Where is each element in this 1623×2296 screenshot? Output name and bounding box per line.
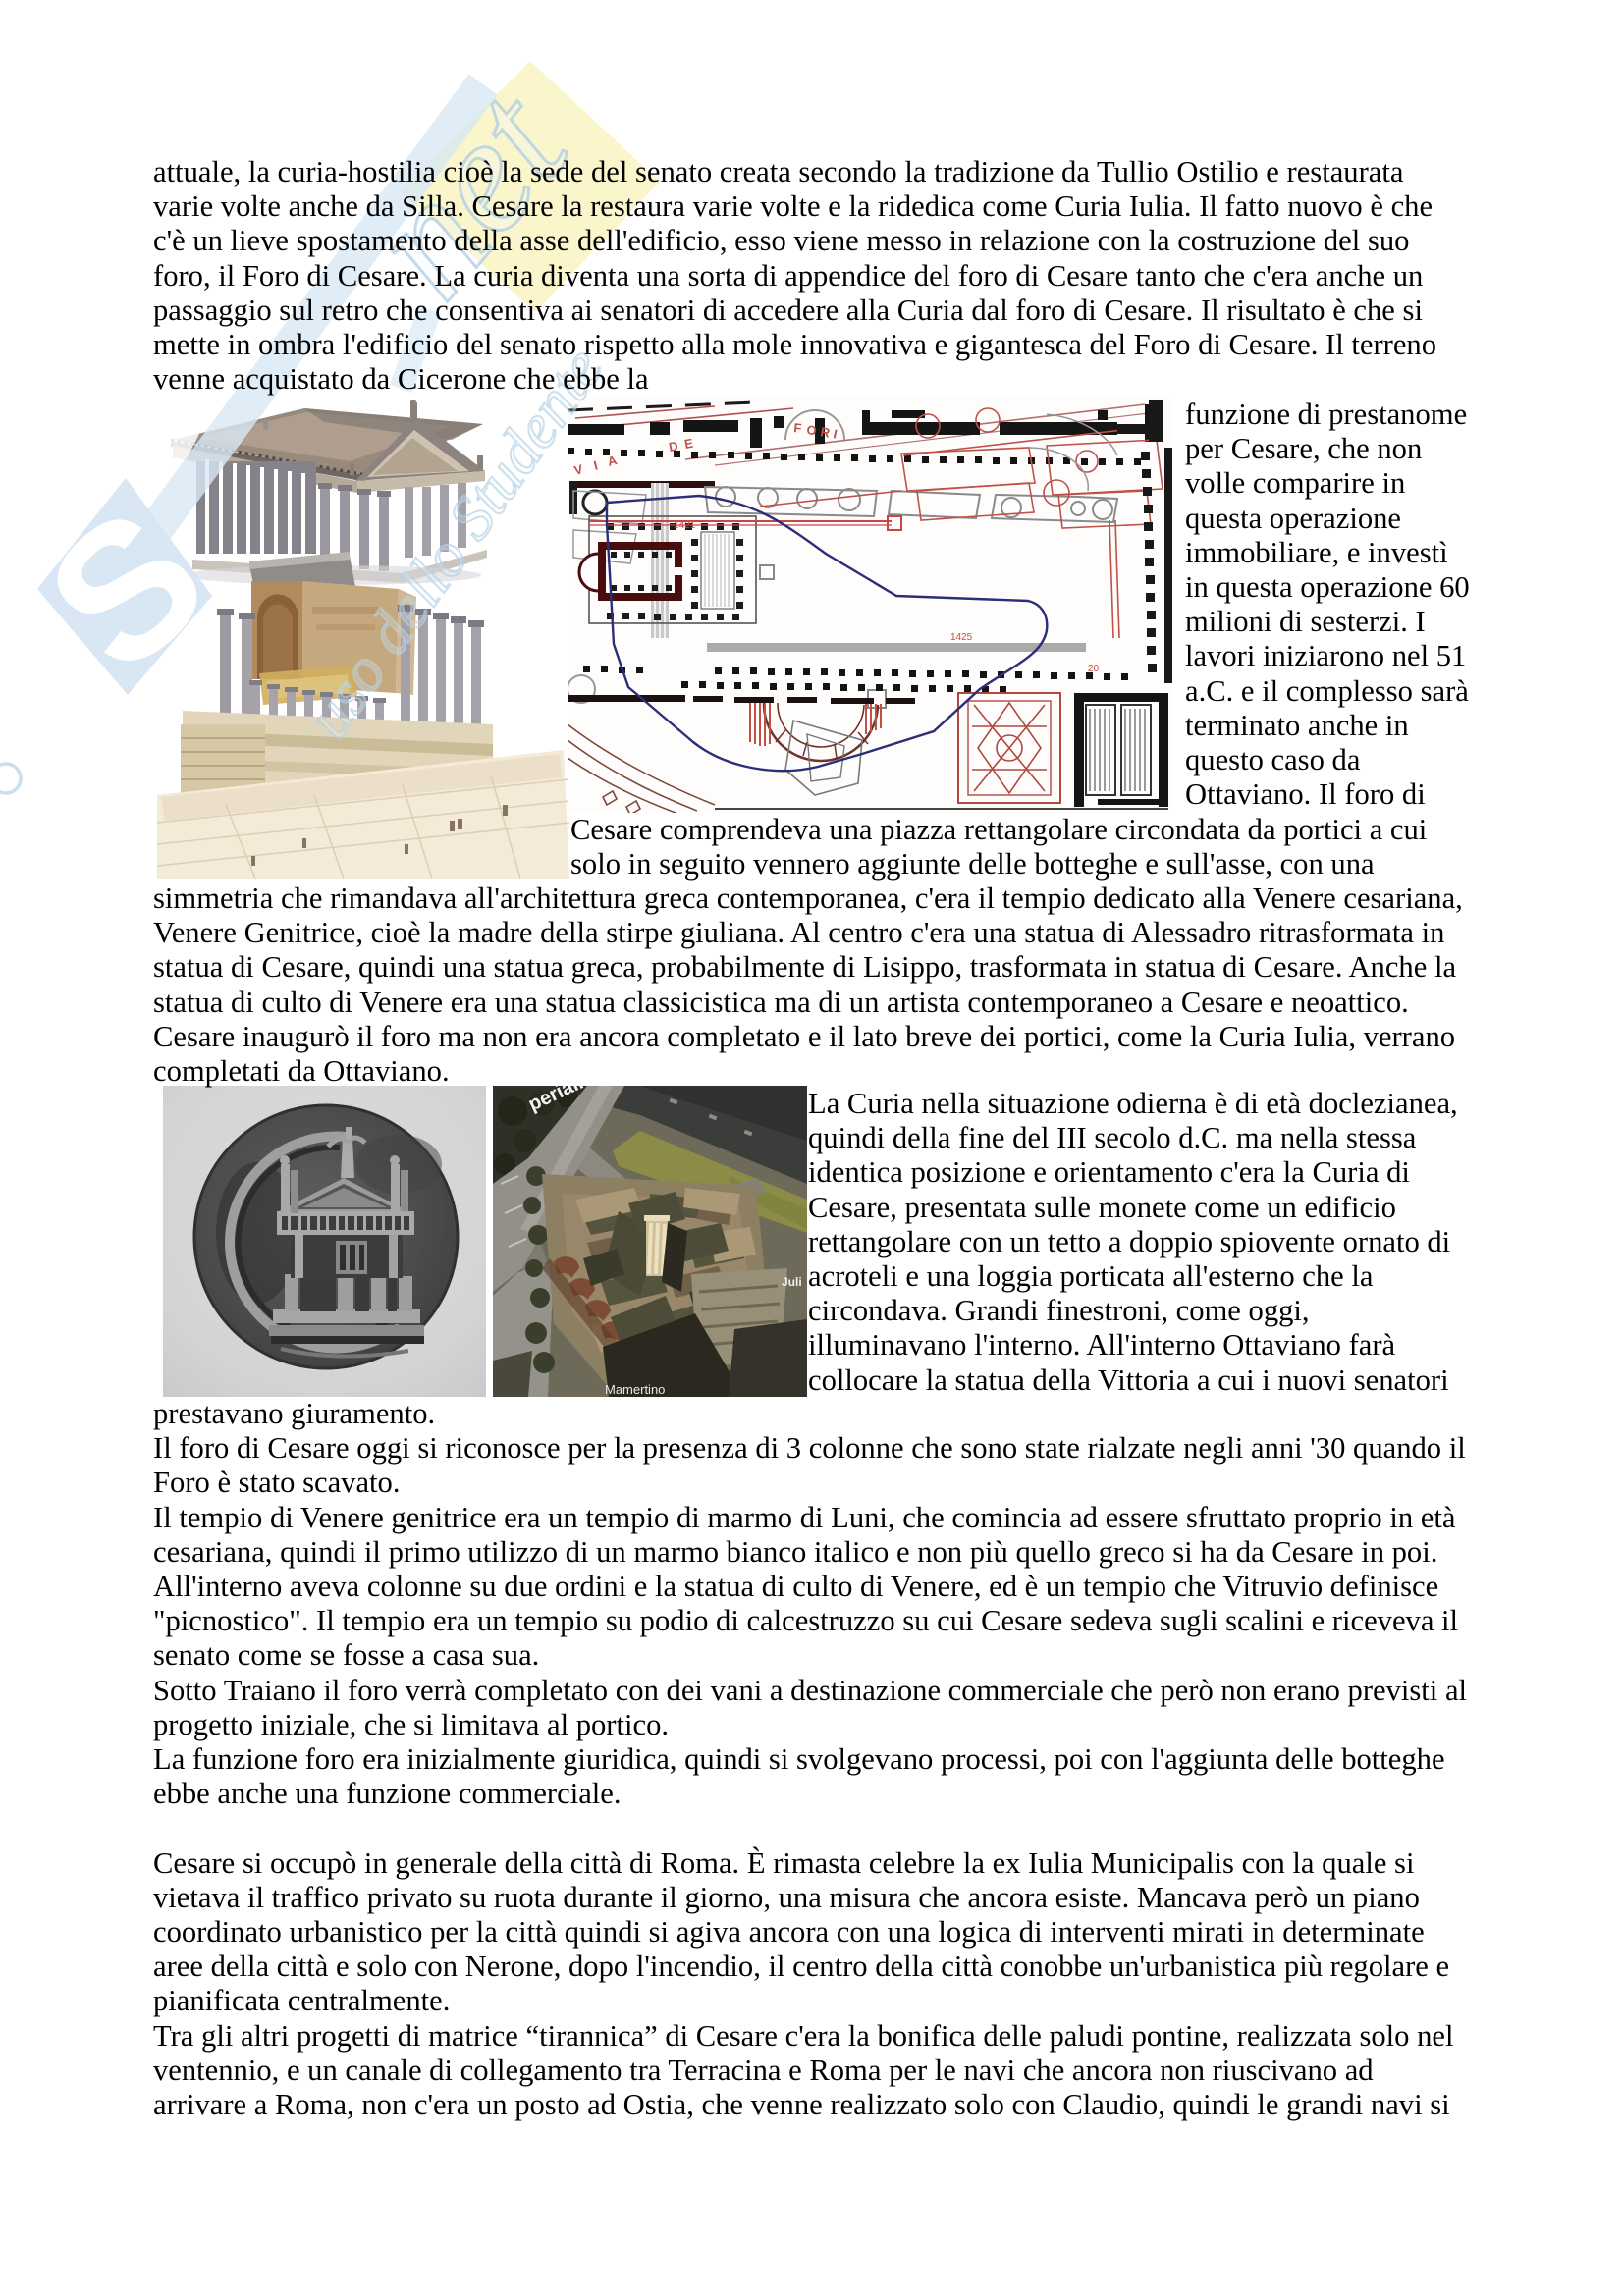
svg-text:Juli: Juli [782, 1275, 802, 1289]
svg-text:S: S [7, 467, 245, 712]
svg-text:Mamertino: Mamertino [605, 1382, 665, 1397]
